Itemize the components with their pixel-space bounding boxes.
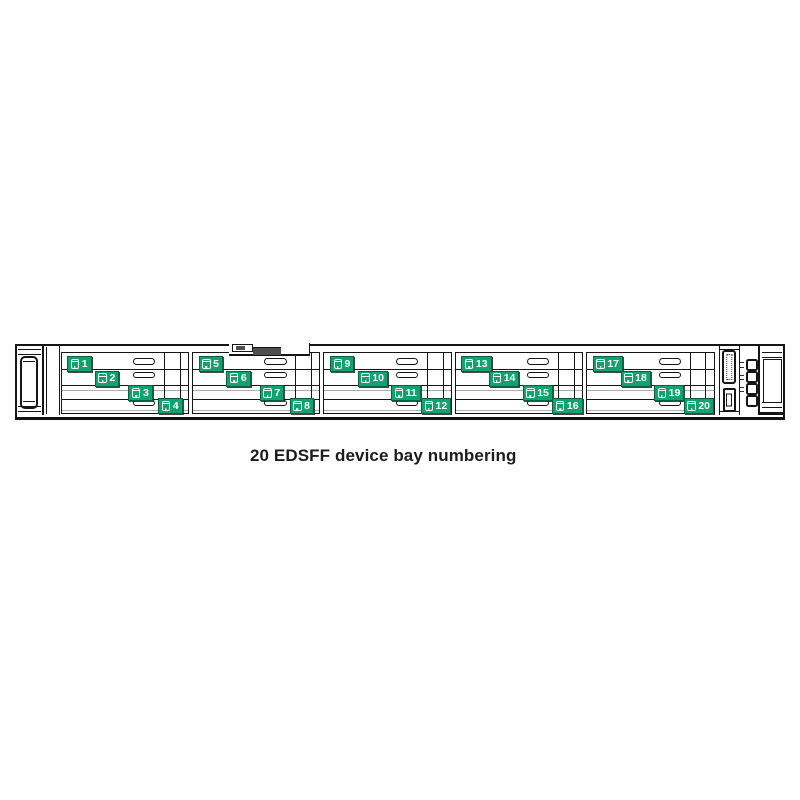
edsff-drive-icon bbox=[98, 373, 107, 383]
ear-top-cap bbox=[18, 349, 41, 355]
bay-label-17: 17 bbox=[593, 356, 623, 372]
edsff-drive-icon bbox=[556, 401, 565, 411]
recess-bar bbox=[253, 347, 281, 355]
edsff-drive-icon bbox=[624, 373, 633, 383]
ear-base bbox=[760, 412, 784, 416]
indicator-glyph bbox=[740, 387, 744, 393]
bay-label-1: 1 bbox=[67, 356, 91, 372]
drive-handle-oval bbox=[396, 372, 418, 379]
drive-handle-oval bbox=[659, 358, 681, 365]
ear-bottom-cap bbox=[18, 406, 41, 412]
health-led-icon bbox=[746, 371, 758, 383]
bay-label-8: 8 bbox=[290, 398, 314, 414]
edsff-drive-icon bbox=[293, 401, 302, 411]
bay-label-13: 13 bbox=[461, 356, 491, 372]
ear-plate bbox=[763, 359, 782, 403]
drive-handle-oval bbox=[659, 372, 681, 379]
bay-label-6: 6 bbox=[226, 371, 250, 387]
bay-label-4: 4 bbox=[158, 398, 182, 414]
bay-number: 8 bbox=[304, 401, 310, 412]
bay-number: 10 bbox=[372, 373, 384, 384]
bay-label-9: 9 bbox=[330, 356, 354, 372]
bay-number: 13 bbox=[476, 359, 488, 370]
drive-handle-oval bbox=[264, 372, 286, 379]
bay-number: 1 bbox=[82, 359, 88, 370]
bay-shadow-line bbox=[62, 390, 188, 391]
bay-latch-column bbox=[427, 353, 428, 400]
serial-pull-tab bbox=[232, 344, 253, 353]
drive-group-3: 9101112 bbox=[323, 352, 451, 415]
drive-handle-oval bbox=[264, 358, 286, 365]
bay-label-18: 18 bbox=[621, 371, 651, 387]
bay-label-16: 16 bbox=[552, 398, 582, 414]
edsff-drive-icon bbox=[71, 359, 80, 369]
left-rack-ear bbox=[17, 346, 44, 415]
edsff-drive-icon bbox=[230, 373, 239, 383]
bay-shadow-line bbox=[193, 390, 319, 391]
usb-port-icon bbox=[723, 388, 737, 413]
indicator-glyph bbox=[740, 362, 744, 368]
edsff-drive-icon bbox=[202, 359, 211, 369]
edsff-drive-icon bbox=[162, 401, 171, 411]
edsff-drive-icon bbox=[132, 388, 141, 398]
bay-label-14: 14 bbox=[489, 371, 519, 387]
bay-label-15: 15 bbox=[523, 385, 553, 401]
bay-number: 17 bbox=[607, 359, 619, 370]
bay-label-11: 11 bbox=[391, 385, 421, 401]
bay-number: 15 bbox=[537, 388, 549, 399]
bay-latch-column bbox=[180, 353, 181, 400]
bay-label-19: 19 bbox=[654, 385, 684, 401]
bay-number: 12 bbox=[436, 401, 448, 412]
bay-number: 2 bbox=[109, 373, 115, 384]
bay-number: 20 bbox=[698, 401, 710, 412]
right-rack-ear bbox=[758, 346, 784, 415]
bay-label-7: 7 bbox=[260, 385, 284, 401]
figure: 1234567891011121314151617181920 20 EDSFF… bbox=[0, 0, 800, 800]
chassis-top-recess bbox=[229, 343, 310, 356]
indicator-glyph bbox=[740, 375, 744, 381]
bay-latch-column bbox=[574, 353, 575, 400]
drive-handle-oval bbox=[527, 358, 549, 365]
bay-shadow-line bbox=[324, 390, 450, 391]
bay-latch-column bbox=[558, 353, 559, 400]
bay-latch-column bbox=[164, 353, 165, 400]
figure-caption: 20 EDSFF device bay numbering bbox=[250, 446, 516, 466]
drive-group-4: 13141516 bbox=[455, 352, 583, 415]
drive-handle-oval bbox=[527, 372, 549, 379]
bay-latch-column bbox=[311, 353, 312, 400]
drive-handle-oval bbox=[396, 358, 418, 365]
drive-group-2: 5678 bbox=[192, 352, 320, 415]
server-front-chassis: 1234567891011121314151617181920 bbox=[15, 344, 785, 420]
display-port-icon bbox=[722, 350, 736, 384]
edsff-drive-icon bbox=[334, 359, 343, 369]
bay-number: 11 bbox=[406, 388, 417, 399]
bay-number: 3 bbox=[143, 388, 149, 399]
edsff-drive-icon bbox=[526, 388, 535, 398]
edsff-drive-icon bbox=[361, 373, 370, 383]
bay-row-line bbox=[193, 385, 319, 386]
bay-label-10: 10 bbox=[358, 371, 388, 387]
bay-latch-column bbox=[690, 353, 691, 400]
edsff-drive-icon bbox=[425, 401, 434, 411]
bay-latch-column bbox=[295, 353, 296, 400]
edsff-drive-icon bbox=[493, 373, 502, 383]
ear-bottom-cap bbox=[762, 402, 783, 408]
drive-handle-oval bbox=[133, 358, 155, 365]
bay-number: 16 bbox=[567, 401, 579, 412]
bay-number: 14 bbox=[504, 373, 516, 384]
drive-handle-oval bbox=[133, 372, 155, 379]
bay-shadow-line bbox=[587, 390, 713, 391]
bay-label-20: 20 bbox=[684, 398, 714, 414]
edsff-drive-icon bbox=[395, 388, 404, 398]
power-button-icon bbox=[746, 395, 758, 407]
pull-tab-label bbox=[236, 346, 245, 350]
edsff-drive-icon bbox=[687, 401, 696, 411]
bay-number: 6 bbox=[241, 373, 247, 384]
bay-number: 9 bbox=[345, 359, 351, 370]
bay-number: 7 bbox=[274, 388, 280, 399]
bay-latch-column bbox=[443, 353, 444, 400]
bay-number: 4 bbox=[173, 401, 179, 412]
bay-row-line bbox=[62, 385, 188, 386]
drive-group-5: 17181920 bbox=[586, 352, 714, 415]
bay-number: 19 bbox=[669, 388, 681, 399]
drive-group-1: 1234 bbox=[61, 352, 189, 415]
uid-led-icon bbox=[746, 359, 758, 371]
ear-hinge-strip bbox=[42, 346, 60, 415]
bay-number: 18 bbox=[635, 373, 647, 384]
ear-latch bbox=[20, 356, 38, 409]
bay-shadow-line bbox=[456, 390, 582, 391]
edsff-drive-icon bbox=[465, 359, 474, 369]
edsff-drive-icon bbox=[658, 388, 667, 398]
front-io-panel bbox=[719, 346, 741, 415]
bay-label-12: 12 bbox=[421, 398, 451, 414]
drive-bay-area: 1234567891011121314151617181920 bbox=[61, 352, 715, 415]
nic-led-icon bbox=[746, 383, 758, 395]
bay-label-2: 2 bbox=[95, 371, 119, 387]
bay-number: 5 bbox=[213, 359, 219, 370]
bay-latch-column bbox=[705, 353, 706, 400]
edsff-drive-icon bbox=[263, 388, 272, 398]
edsff-drive-icon bbox=[596, 359, 605, 369]
status-led-column bbox=[739, 346, 758, 415]
bay-label-5: 5 bbox=[199, 356, 223, 372]
ear-top-cap bbox=[762, 352, 783, 358]
bay-label-3: 3 bbox=[128, 385, 152, 401]
